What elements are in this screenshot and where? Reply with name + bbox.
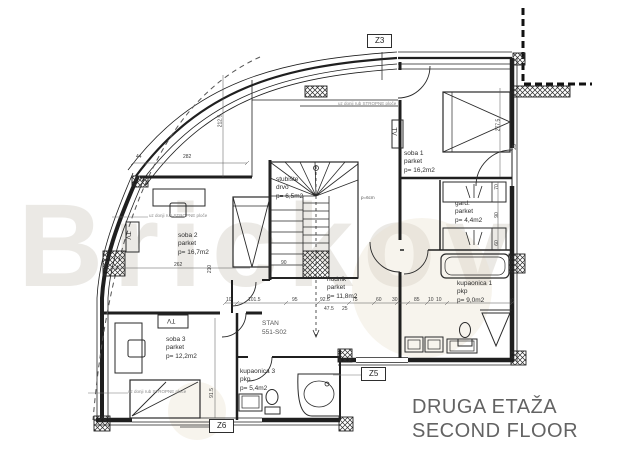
room-area: p= 5,4m2 (240, 385, 275, 393)
walls (96, 58, 514, 420)
room-label-soba3: soba 3 parket p= 12,2m2 (166, 336, 197, 361)
room-area: p= 9,0m2 (457, 297, 492, 305)
room-label-kupaonica1: kupaonica 1 pkp p= 9,0m2 (457, 280, 492, 305)
room-label-gard: gard. parket p= 4,4m2 (455, 200, 482, 225)
dimension-label: 75 (352, 297, 358, 303)
dimension-label: 212.5 (217, 115, 223, 128)
section-marker-z5: Z5 (361, 367, 386, 381)
dimension-label: 44 (136, 154, 142, 160)
leader-lines (88, 52, 382, 427)
dimension-label: 25 (512, 144, 518, 150)
tv-label: TV (391, 127, 398, 135)
unit-number: 551-S02 (262, 329, 287, 338)
dimension-label: 91.5 (209, 388, 215, 398)
dimension-lines (110, 75, 514, 418)
stair-thickness-note: p=6cm (361, 195, 375, 200)
room-name: soba 2 (178, 232, 209, 240)
dimension-label: 262 (174, 262, 182, 268)
dimension-label: 60 (494, 240, 500, 246)
tv-label: TV (167, 317, 175, 324)
title-croatian: DRUGA ETAŽA (412, 395, 578, 419)
room-floor: parket (166, 344, 197, 352)
room-name: kupaonica 1 (457, 280, 492, 288)
unit-label: STAN 551-S02 (262, 320, 287, 338)
dimension-label: 90 (494, 212, 500, 218)
room-label-soba2: soba 2 parket p= 16,7m2 (178, 232, 209, 257)
section-marker-z3: Z3 (367, 34, 392, 48)
room-floor: drvo (276, 184, 303, 192)
room-name: hodnik (327, 276, 357, 284)
dimension-label: 282 (183, 154, 191, 160)
room-name: stubište (276, 176, 303, 184)
room-floor: parket (178, 240, 209, 248)
room-name: soba 3 (166, 336, 197, 344)
dimension-label: 70 (494, 184, 500, 190)
dimension-label: 10 (226, 297, 232, 303)
room-area: p= 16,2m2 (404, 167, 435, 175)
room-label-stubiste: stubište drvo p= 6,5m2 (276, 176, 303, 201)
section-marker-z6: Z6 (209, 419, 234, 433)
slab-edge-note: uz donji rub STROPNE ploče (149, 213, 207, 218)
slab-edge-note: uz donji rub STROPNE ploče (338, 101, 396, 106)
windows (96, 52, 517, 425)
dimension-label: 10 (436, 297, 442, 303)
dimension-label: 90 (281, 260, 287, 266)
floor-plan: Brickov (0, 0, 622, 470)
room-area: p= 12,2m2 (166, 353, 197, 361)
room-label-kupaonica3: kupaonica 3 pkp p= 5,4m2 (240, 368, 275, 393)
dimension-label: 25 (510, 298, 516, 304)
dimension-label: 10 (428, 297, 434, 303)
unit-name: STAN (262, 320, 287, 329)
drawing-title: DRUGA ETAŽA SECOND FLOOR (412, 395, 578, 443)
dimension-label: 95 (292, 297, 298, 303)
dimension-label: 60 (376, 297, 382, 303)
room-area: p= 16,7m2 (178, 249, 209, 257)
room-area: p= 4,4m2 (455, 217, 482, 225)
dimension-label: 47.5 (324, 306, 334, 312)
dimension-label: 101.5 (248, 297, 261, 303)
dimension-label: 92.5 (320, 297, 330, 303)
dimension-label: 30 (392, 297, 398, 303)
dimension-label: 277.5 (495, 119, 501, 132)
room-name: kupaonica 3 (240, 368, 275, 376)
room-label-soba1: soba 1 parket p= 16,2m2 (404, 150, 435, 175)
room-floor: pkp (457, 288, 492, 296)
room-floor: parket (404, 158, 435, 166)
room-floor: pkp (240, 376, 275, 384)
dimension-label: 85 (414, 297, 420, 303)
slab-edge-note: uz donji rub STROPNE ploče (128, 389, 186, 394)
tv-label: TV (125, 231, 132, 239)
title-english: SECOND FLOOR (412, 419, 578, 443)
room-floor: parket (327, 284, 357, 292)
room-area: p= 6,5m2 (276, 193, 303, 201)
dimension-label: 210 (207, 265, 213, 273)
room-floor: parket (455, 208, 482, 216)
room-name: gard. (455, 200, 482, 208)
room-name: soba 1 (404, 150, 435, 158)
dimension-label: 25 (342, 306, 348, 312)
